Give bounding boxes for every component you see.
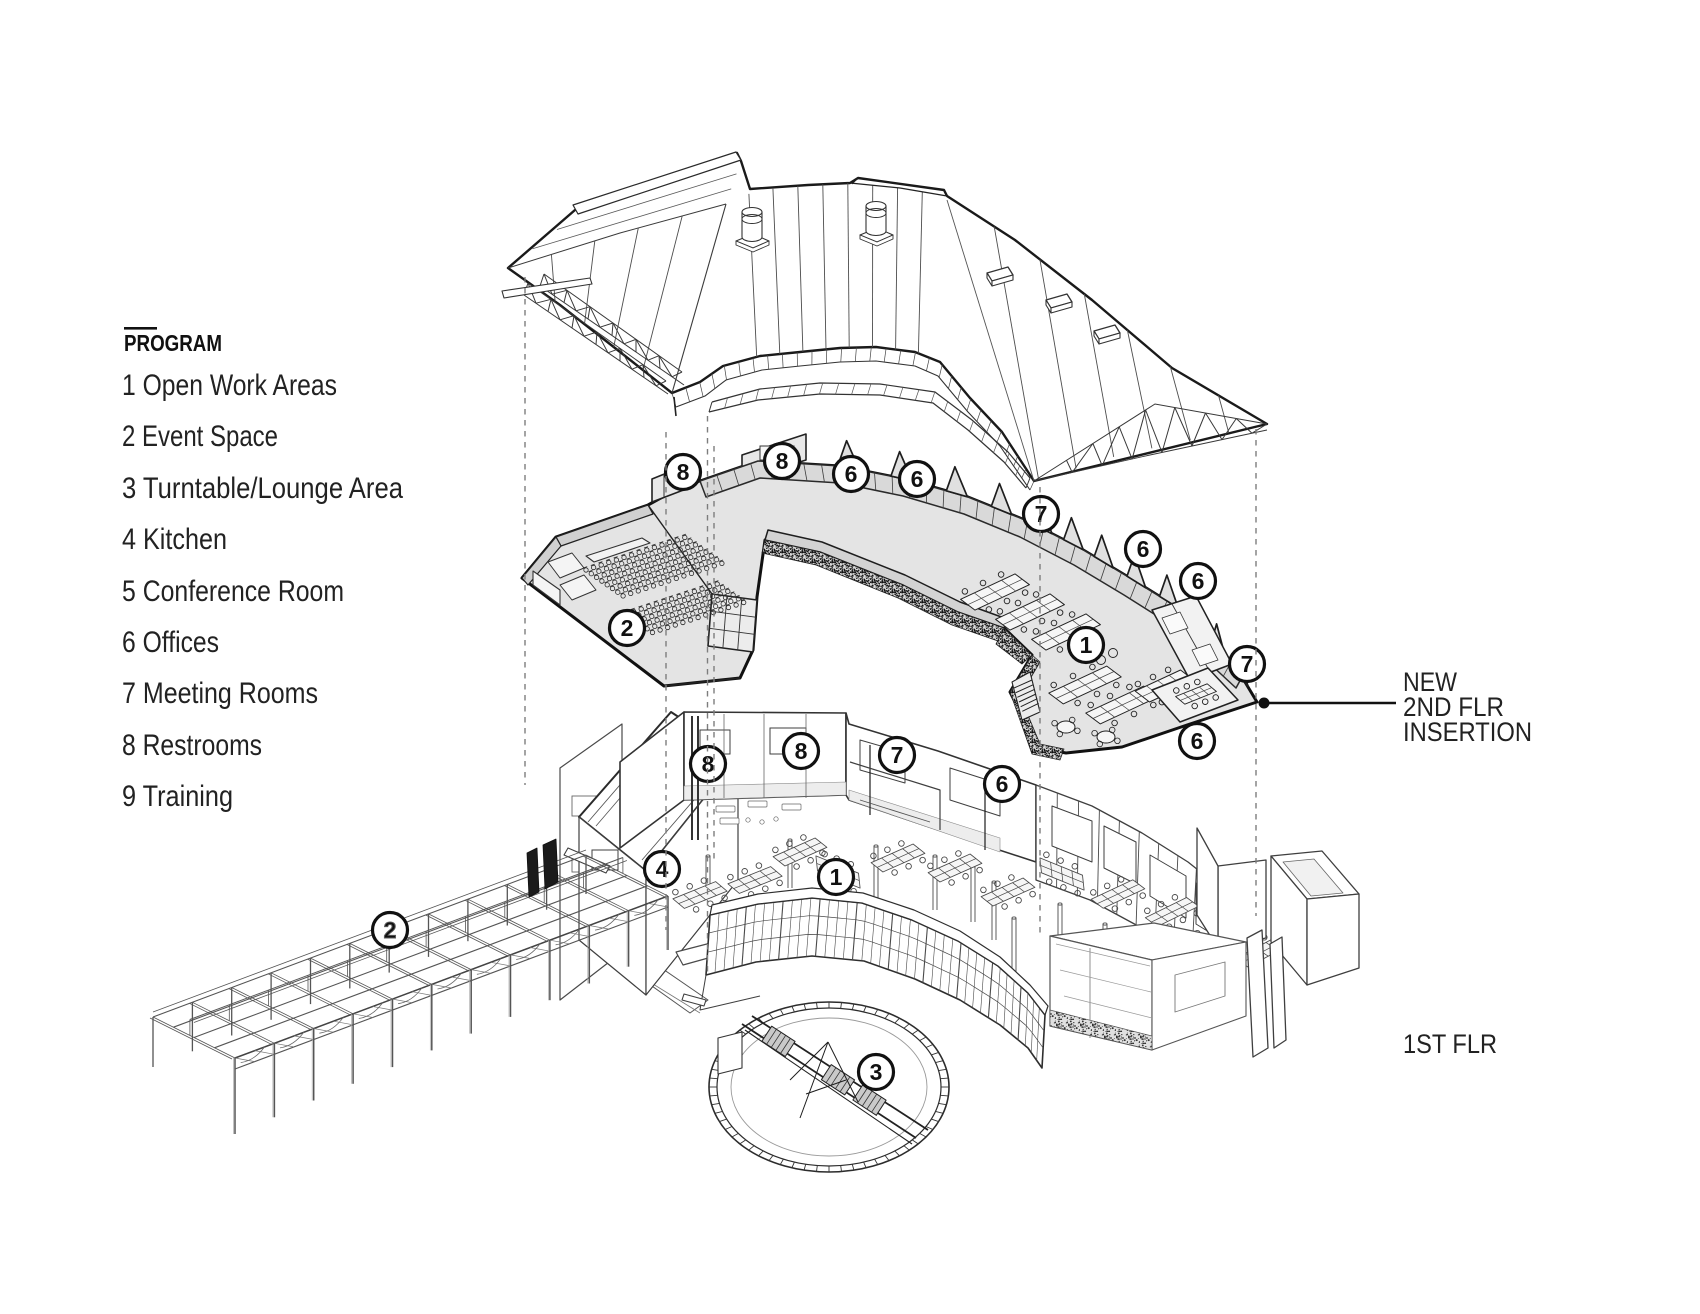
svg-text:PROGRAM: PROGRAM [124,330,222,356]
svg-text:7: 7 [891,742,904,768]
svg-text:4: 4 [656,856,669,882]
svg-text:7: 7 [1035,501,1048,527]
svg-text:1ST FLR: 1ST FLR [1403,1029,1497,1059]
svg-text:3: 3 [870,1059,883,1085]
svg-text:1: 1 [830,864,843,890]
svg-text:6 Offices: 6 Offices [122,626,219,659]
svg-text:2: 2 [621,615,634,641]
svg-text:6: 6 [845,461,858,487]
svg-text:3 Turntable/Lounge Area: 3 Turntable/Lounge Area [122,472,403,505]
svg-text:9 Training: 9 Training [122,780,233,813]
svg-text:6: 6 [1192,568,1205,594]
svg-text:2 Event Space: 2 Event Space [122,420,278,453]
svg-text:6: 6 [996,771,1009,797]
svg-text:7: 7 [1241,651,1254,677]
svg-text:5 Conference Room: 5 Conference Room [122,575,344,608]
svg-text:4 Kitchen: 4 Kitchen [122,523,227,556]
svg-text:1 Open Work Areas: 1 Open Work Areas [122,369,337,402]
svg-text:8: 8 [776,448,789,474]
svg-text:6: 6 [1191,728,1204,754]
svg-text:8 Restrooms: 8 Restrooms [122,729,262,762]
svg-text:6: 6 [911,466,924,492]
svg-text:INSERTION: INSERTION [1403,717,1532,747]
svg-text:1: 1 [1080,632,1093,658]
svg-text:7 Meeting Rooms: 7 Meeting Rooms [122,677,318,710]
svg-text:8: 8 [795,738,808,764]
svg-text:8: 8 [677,459,690,485]
svg-text:6: 6 [1137,536,1150,562]
svg-text:2: 2 [384,917,397,943]
